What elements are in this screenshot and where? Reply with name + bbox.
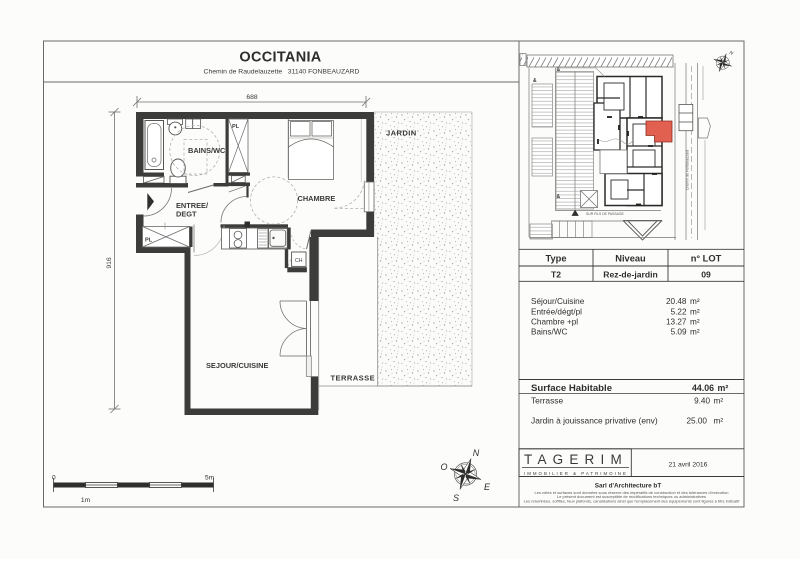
svg-text:5m: 5m: [205, 475, 215, 482]
svg-text:688: 688: [246, 94, 258, 101]
svg-text:E: E: [484, 482, 491, 492]
svg-text:Jardin à jouissance privative: Jardin à jouissance privative (env): [531, 416, 658, 426]
svg-text:m²: m²: [714, 397, 724, 406]
svg-text:916: 916: [106, 257, 113, 269]
svg-text:Les retombées, soffites, faux: Les retombées, soffites, faux plafonds, …: [524, 498, 741, 503]
svg-text:Entrée/dégt/pl: Entrée/dégt/pl: [531, 308, 582, 317]
svg-text:&: &: [557, 194, 561, 200]
svg-text:09: 09: [701, 270, 711, 280]
svg-text:m²: m²: [690, 297, 700, 306]
svg-text:&: &: [533, 78, 537, 84]
svg-text:DEGT: DEGT: [176, 210, 197, 219]
svg-text:Niveau: Niveau: [615, 254, 646, 264]
svg-text:TAGERIM: TAGERIM: [524, 452, 628, 467]
svg-text:N: N: [473, 448, 480, 458]
svg-text:m²: m²: [690, 318, 700, 327]
svg-text:Chemin de Fontbeauzard: Chemin de Fontbeauzard: [686, 150, 690, 191]
svg-text:n° LOT: n° LOT: [691, 254, 722, 264]
svg-text:Sarl d'Architecture bT: Sarl d'Architecture bT: [595, 483, 662, 490]
svg-text:5.09: 5.09: [671, 328, 687, 337]
svg-text:PL: PL: [145, 238, 153, 244]
svg-text:SUR FILS DE PASSAGE: SUR FILS DE PASSAGE: [586, 212, 625, 216]
svg-text:TERRASSE: TERRASSE: [331, 374, 376, 383]
svg-text:21 avril 2016: 21 avril 2016: [669, 462, 708, 469]
svg-text:m²: m²: [714, 417, 724, 426]
svg-text:Chemin de Raudelauzette 3114: Chemin de Raudelauzette 31140 FONBEAUZAR…: [204, 69, 360, 76]
svg-text:JARDIN: JARDIN: [386, 129, 417, 138]
svg-text:Chambre +pl: Chambre +pl: [531, 318, 578, 327]
svg-text:Surface Habitable: Surface Habitable: [531, 383, 612, 394]
svg-text:20.48: 20.48: [666, 297, 687, 306]
svg-text:CHAMBRE: CHAMBRE: [298, 194, 336, 203]
svg-text:9.40: 9.40: [694, 397, 710, 406]
svg-text:13.27: 13.27: [666, 318, 687, 327]
svg-text:Type: Type: [545, 254, 566, 264]
svg-text:T2: T2: [551, 270, 561, 280]
svg-text:SEJOUR/CUISINE: SEJOUR/CUISINE: [206, 361, 268, 370]
svg-text:1m: 1m: [81, 497, 91, 504]
svg-text:Rez-de-jardin: Rez-de-jardin: [603, 270, 657, 280]
svg-text:25.00: 25.00: [687, 417, 708, 426]
svg-text:m²: m²: [690, 308, 700, 317]
svg-text:O: O: [440, 462, 447, 472]
svg-text:Séjour/Cuisine: Séjour/Cuisine: [531, 297, 585, 306]
svg-text:44.06: 44.06: [692, 383, 714, 393]
svg-text:0: 0: [52, 475, 56, 482]
svg-text:m²: m²: [690, 328, 700, 337]
svg-text:OCCITANIA: OCCITANIA: [239, 50, 321, 66]
svg-text:Terrasse: Terrasse: [531, 396, 563, 406]
svg-text:PL: PL: [232, 124, 240, 130]
svg-text:BAINS/WC: BAINS/WC: [188, 146, 226, 155]
svg-text:m²: m²: [718, 383, 729, 393]
svg-text:CH: CH: [295, 258, 303, 264]
svg-text:S: S: [453, 493, 459, 503]
svg-text:IMMOBILIER & PATRIMOINE: IMMOBILIER & PATRIMOINE: [524, 471, 628, 476]
svg-text:Bains/WC: Bains/WC: [531, 328, 567, 337]
svg-text:5.22: 5.22: [671, 308, 687, 317]
